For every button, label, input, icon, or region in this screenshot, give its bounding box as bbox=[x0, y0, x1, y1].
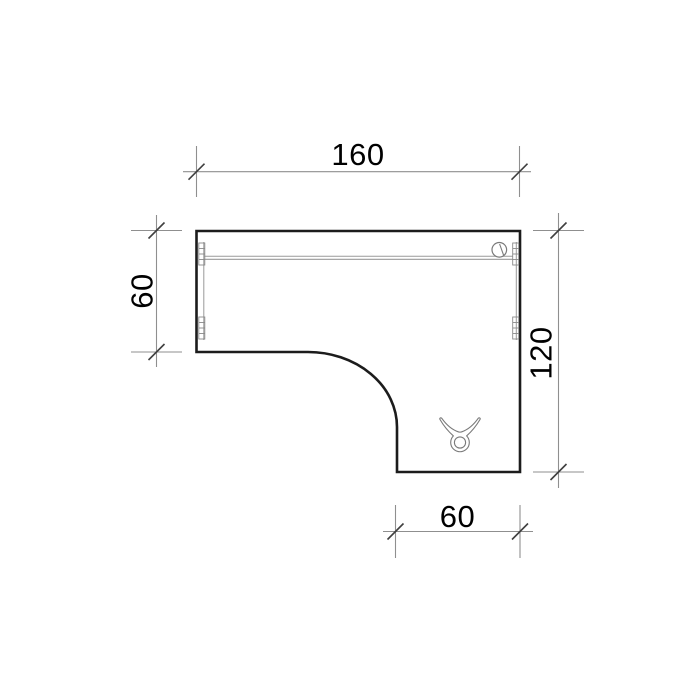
dim-bottom-label: 60 bbox=[395, 501, 520, 532]
cable-grommet-icon bbox=[492, 243, 507, 258]
dim-right-label: 120 bbox=[526, 326, 557, 379]
dim-left-label: 60 bbox=[126, 273, 157, 308]
technical-drawing bbox=[0, 0, 700, 700]
dim-top-label: 160 bbox=[196, 139, 520, 170]
desk-panel-outline bbox=[197, 231, 521, 472]
drawing-canvas: 160 60 120 60 bbox=[0, 0, 700, 700]
